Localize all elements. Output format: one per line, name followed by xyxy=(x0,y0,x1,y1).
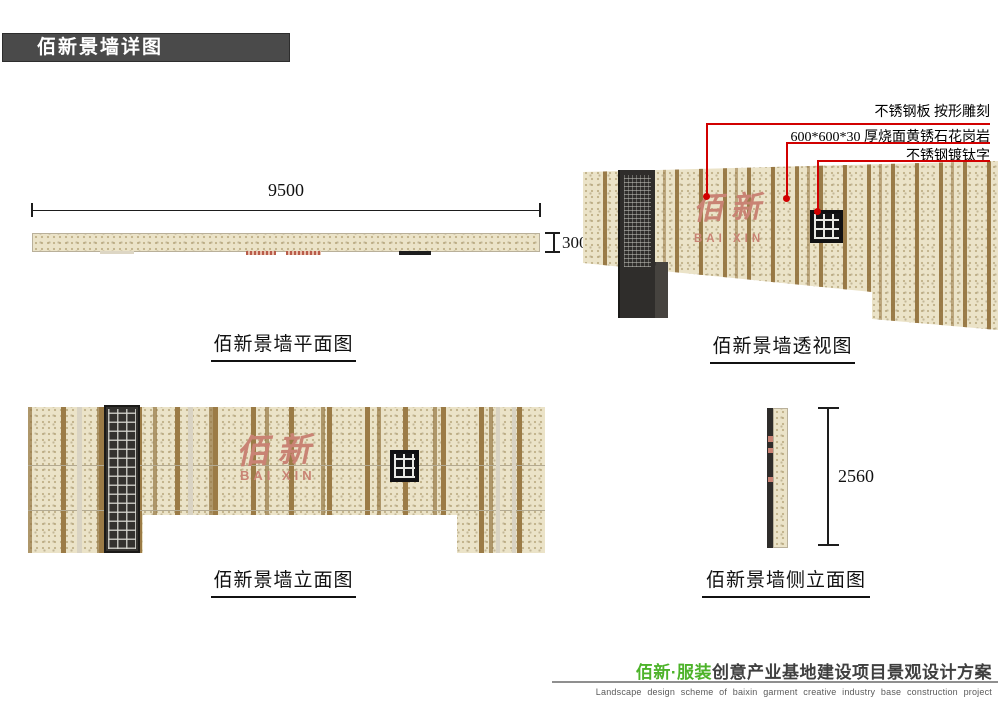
side-logo-mark xyxy=(768,477,773,482)
perspective-pillar xyxy=(618,170,655,318)
drawing-sheet: 佰新景墙详图 9500 300 佰新景墙平面图 佰 新 BAI XIN 不锈钢板… xyxy=(0,0,1000,707)
plan-logo-mark xyxy=(286,251,321,255)
leader-line xyxy=(786,142,788,197)
plan-logo-mark xyxy=(246,251,276,255)
plan-dimension-line xyxy=(32,210,540,211)
perspective-logo-cn: 佰 新 xyxy=(692,182,761,228)
dimension-tick xyxy=(818,407,839,409)
dimension-tick xyxy=(545,232,560,234)
dimension-tick xyxy=(818,544,839,546)
plaque-maze-pattern xyxy=(814,214,839,239)
project-brand-name: 佰新·服装 xyxy=(636,663,712,682)
project-name: 创意产业基地建设项目景观设计方案 xyxy=(712,663,992,682)
elevation-logo-cn: 佰 新 xyxy=(235,423,311,474)
lattice-fret-pattern xyxy=(108,409,136,549)
light-granite-strip xyxy=(512,407,516,553)
elevation-lattice-column xyxy=(104,405,140,553)
sheet-title-bar: 佰新景墙详图 xyxy=(2,33,290,62)
annotation-titanium-letters-label: 不锈钢镀钛字 xyxy=(906,145,990,165)
leader-line xyxy=(707,123,990,125)
dimension-tick xyxy=(545,251,560,253)
side-granite-layer xyxy=(773,408,788,548)
elevation-logo-en: BAI XIN xyxy=(240,468,316,483)
pillar-text-pattern xyxy=(624,175,651,267)
plan-thickness-line xyxy=(553,233,555,252)
light-granite-strip xyxy=(188,407,193,553)
side-caption: 佰新景墙侧立面图 xyxy=(702,565,870,598)
perspective-logo-plaque xyxy=(810,210,843,243)
elevation-logo-plaque xyxy=(390,450,419,482)
perspective-caption: 佰新景墙透视图 xyxy=(710,331,855,364)
plan-caption: 佰新景墙平面图 xyxy=(211,329,356,362)
dimension-tick xyxy=(31,203,33,217)
dimension-tick xyxy=(539,203,541,217)
plan-detail-mark xyxy=(100,251,134,254)
elevation-caption: 佰新景墙立面图 xyxy=(211,565,356,598)
leader-line xyxy=(818,160,990,162)
side-logo-mark xyxy=(768,448,773,453)
light-granite-strip xyxy=(77,407,82,553)
annotation-steel-plate-label: 不锈钢板 按形雕刻 xyxy=(875,101,991,121)
side-dimension-line xyxy=(827,407,829,545)
project-subtitle-english: Landscape design scheme of baixin garmen… xyxy=(596,687,992,697)
plan-wall-strip xyxy=(32,233,540,252)
plan-width-dimension: 9500 xyxy=(246,180,326,201)
leader-line xyxy=(787,142,990,144)
leader-line xyxy=(706,123,708,195)
leader-line xyxy=(817,160,819,210)
perspective-logo-en: BAI XIN xyxy=(694,233,764,245)
side-logo-mark xyxy=(768,436,773,442)
plaque-maze-pattern xyxy=(394,454,415,478)
leader-dot xyxy=(814,208,821,215)
project-title: 佰新·服装创意产业基地建设项目景观设计方案 xyxy=(636,658,992,683)
light-granite-strip xyxy=(496,407,500,553)
leader-dot xyxy=(783,195,790,202)
leader-dot xyxy=(703,193,710,200)
side-height-dimension: 2560 xyxy=(838,466,874,487)
plan-plaque-mark xyxy=(399,251,431,255)
